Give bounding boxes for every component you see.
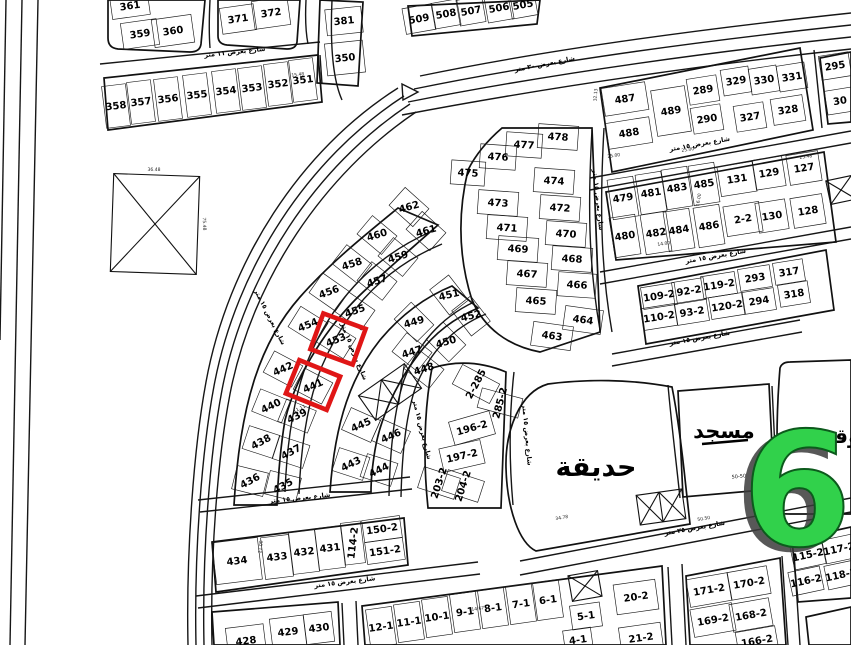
plot-label: 479 <box>612 192 634 206</box>
block-outline <box>806 607 851 645</box>
plot-label: 11-1 <box>396 616 422 630</box>
block-row-428-430: 428429430 <box>225 611 334 645</box>
plot-label: 443 <box>340 455 364 474</box>
plot-label: 355 <box>186 89 208 102</box>
street-label: شارع بعرض ١١ متر <box>203 45 266 59</box>
street-label: شارع بعرض ١٥ متر <box>591 168 605 231</box>
plot-label: 130 <box>761 210 783 224</box>
block-row-1-series: 12-111-110-19-18-17-16-15-14-120-221-2 <box>365 579 663 645</box>
plot-label: 458 <box>341 256 364 273</box>
plot-label: 330 <box>753 74 775 88</box>
plot-label: 166-2 <box>740 633 773 645</box>
dimension-label: 25.48 <box>799 153 813 161</box>
plot-label: 437 <box>280 443 304 463</box>
plot-label: 331 <box>781 71 803 85</box>
plot-label: 480 <box>614 230 636 244</box>
plot-label: 127 <box>793 162 815 176</box>
dimension-label: 21.00 <box>257 540 265 554</box>
plot-label: 357 <box>130 96 152 109</box>
plot-label: 361 <box>119 0 141 14</box>
block-arc-outer-435-462: 4624614604594584574564554544534424414404… <box>232 187 446 501</box>
plot-label: 8-1 <box>483 602 502 615</box>
plot-label: 457 <box>366 273 389 290</box>
plot-label: 93-2 <box>679 305 705 320</box>
plot-label: 359 <box>129 28 151 42</box>
plot-label: 92-2 <box>676 284 702 299</box>
plot-label: 352 <box>267 78 289 91</box>
plot-label: 360 <box>162 25 184 39</box>
plot-label: 120-2 <box>710 299 743 315</box>
plot-label: 318 <box>783 288 805 302</box>
plot-label: 128 <box>797 205 819 219</box>
plot-label: 489 <box>660 105 682 119</box>
plot-label: 20-2 <box>623 591 649 605</box>
plot-label: 293 <box>744 272 766 286</box>
road <box>356 601 358 645</box>
plot-label: 372 <box>260 7 282 21</box>
plot-label: 196-2 <box>455 419 489 438</box>
plot-label: 488 <box>618 127 640 141</box>
plot-label: 459 <box>387 249 410 266</box>
plot-label: 438 <box>250 433 274 453</box>
street-label: شارع بعرض ٢٥ متر <box>663 519 726 538</box>
plot-label: 5-1 <box>576 610 595 623</box>
plot-label: 350 <box>334 52 356 65</box>
plot-label: 21-2 <box>628 632 654 645</box>
plot-label: 354 <box>215 85 237 98</box>
plot-label: 433 <box>266 551 288 564</box>
plot-label: 109-2 <box>642 289 675 305</box>
plot-label: 328 <box>777 104 799 118</box>
plot-label: 461 <box>415 223 438 239</box>
plot-label: 464 <box>572 314 594 328</box>
plot-label: 353 <box>241 82 263 95</box>
plot-label: 475 <box>457 167 479 179</box>
plot-label: 434 <box>226 555 248 568</box>
plot-label: 470 <box>555 228 577 240</box>
dimension-label: 34.78 <box>555 514 569 522</box>
road <box>342 603 344 645</box>
plot-label: 455 <box>344 303 367 320</box>
plot-label: 509 <box>408 12 431 26</box>
plot-label: 432 <box>293 546 315 559</box>
traffic-island <box>402 84 418 100</box>
road <box>25 0 38 645</box>
utility-crossed-box <box>358 364 421 421</box>
plot-label: 482 <box>645 227 667 241</box>
plot-label: 129 <box>758 167 780 181</box>
block-strip-505-509: 509508507506505 <box>402 0 538 34</box>
plot-label: 508 <box>435 7 458 21</box>
plot-label: 371 <box>227 13 249 27</box>
road <box>10 0 22 645</box>
plot-label: 10-1 <box>424 611 450 625</box>
plot-label: 356 <box>157 93 179 106</box>
park-label: حديقة <box>556 452 637 483</box>
plot-label: 4-1 <box>568 634 587 645</box>
plot-label: 2-285 <box>464 368 489 401</box>
plot-label: 456 <box>318 284 341 301</box>
cadastral-map-image: 3613593603713723813503583573563553543533… <box>0 0 851 645</box>
district-number: 6 <box>742 399 851 583</box>
plot-label: 473 <box>487 197 509 209</box>
plot-label: 452 <box>460 309 483 325</box>
dimension-label: 32.13 <box>592 88 599 101</box>
plot-label: 114-2 <box>346 527 361 560</box>
plot-label: 6-1 <box>538 594 557 607</box>
plot-label: 110-2 <box>642 310 675 326</box>
road <box>0 0 6 340</box>
plot-label: 450 <box>435 334 458 350</box>
plot-label: 289 <box>692 84 714 98</box>
plot-label: 151-2 <box>368 544 401 559</box>
plot-label: 449 <box>403 314 426 330</box>
plot-label: 430 <box>308 622 330 635</box>
plot-label: 295 <box>824 60 846 74</box>
plot-label: 483 <box>666 182 688 196</box>
plot-label: 436 <box>239 472 263 492</box>
plot-label: 469 <box>507 243 529 255</box>
dimension-label: 36.48 <box>148 167 161 173</box>
plot-label: 440 <box>260 397 284 416</box>
utility-crossed-box <box>110 174 199 275</box>
plot-label: 150-2 <box>365 522 398 537</box>
dimension-label: 75.48 <box>201 217 207 230</box>
plot-label: 381 <box>333 15 355 28</box>
street-label: شارع بعرض ١٥ متر <box>410 398 433 460</box>
plot-label: 445 <box>350 416 374 435</box>
plot-label: 171-2 <box>692 582 725 598</box>
plot-label: 317 <box>778 266 800 280</box>
plot-label: 2-2 <box>733 213 753 227</box>
plot-label: 428 <box>235 635 257 645</box>
plot-label: 466 <box>566 279 588 291</box>
block-top-left-a: 361359360 <box>110 0 195 49</box>
street-label: شارع بعرض ١٥ متر <box>668 329 731 348</box>
plot-label: 486 <box>698 220 720 234</box>
plot-label: 462 <box>398 199 421 215</box>
roads <box>0 0 851 645</box>
plot-label: 203-2 <box>429 466 449 500</box>
plot-label: 119-2 <box>702 278 735 294</box>
street-label: شارع بعرض ١٥ متر <box>252 287 287 346</box>
plot-label: 474 <box>543 175 565 187</box>
plot-label: 467 <box>516 268 538 280</box>
block-top-left-b: 371372 <box>219 0 290 34</box>
plot-label: 476 <box>487 151 509 163</box>
plot-label: 30 <box>832 95 848 108</box>
plot-label: 506 <box>488 1 511 15</box>
plot-label: 478 <box>547 131 569 143</box>
utility-crossed-box <box>636 489 686 525</box>
plot-label: 431 <box>319 542 341 555</box>
plot-label: 471 <box>496 222 518 234</box>
plot-label: 507 <box>460 4 483 18</box>
block-grid-487: 487488489289290329327330331328 <box>601 62 808 149</box>
road <box>209 0 210 48</box>
road <box>408 37 851 102</box>
road <box>306 0 308 44</box>
cadastral-map: 3613593603713723813503583573563553543533… <box>0 0 851 645</box>
plot-label: 472 <box>549 202 571 214</box>
plot-label: 460 <box>366 227 389 244</box>
road <box>510 372 514 505</box>
plot-label: 169-2 <box>696 612 729 628</box>
plot-label: 463 <box>541 330 563 344</box>
plot-label: 444 <box>368 461 392 480</box>
plot-label: 7-1 <box>511 598 530 611</box>
road <box>600 239 851 284</box>
plot-label: 131 <box>726 173 748 187</box>
plot-label: 329 <box>725 75 747 89</box>
plot-label: 448 <box>413 361 436 378</box>
plot-label: 290 <box>696 113 718 127</box>
plot-label: 487 <box>614 93 636 107</box>
block-strip-351-358: 358357356355354353352351 <box>102 58 318 129</box>
street-label: شارع بعرض ١٥ متر <box>520 403 533 466</box>
plot-label: 435 <box>272 477 296 497</box>
plot-label: 327 <box>739 111 761 125</box>
plot-label: 485 <box>693 178 715 192</box>
plot-label: 358 <box>105 100 127 113</box>
plot-label: 197-2 <box>445 448 479 466</box>
plot-label: 294 <box>748 295 770 309</box>
road <box>668 567 672 645</box>
plot-label: 468 <box>561 253 583 265</box>
plot-label: 465 <box>525 295 547 307</box>
plot-label: 481 <box>640 187 662 201</box>
plot-label: 505 <box>512 0 535 13</box>
plot-label: 168-2 <box>734 607 767 623</box>
plot-label: 484 <box>668 224 690 238</box>
plot-label: 204-2 <box>453 469 473 503</box>
street-label: شارع بعرض ١٥ متر <box>668 135 731 154</box>
plot-label: 429 <box>277 626 299 639</box>
plot-label: 12-1 <box>368 621 394 635</box>
